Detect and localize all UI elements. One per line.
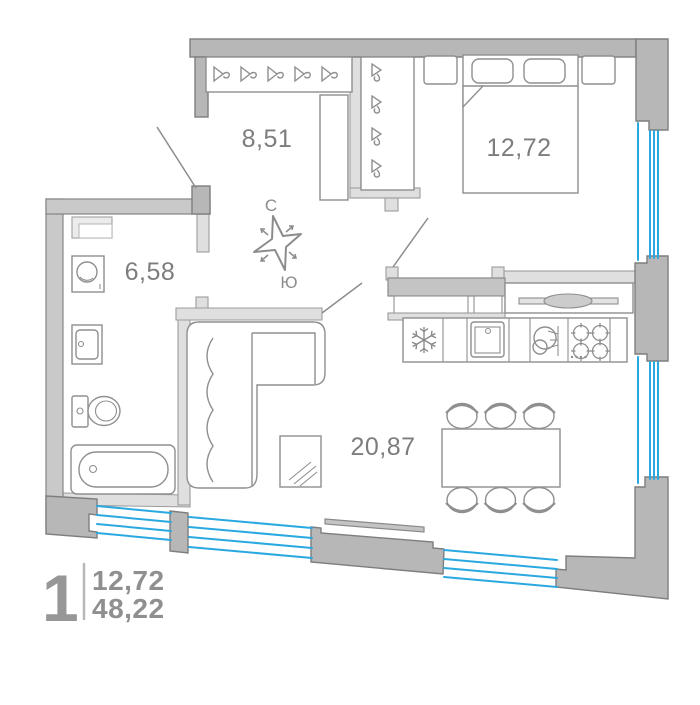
bar-cabinet-left — [394, 296, 468, 314]
compass-rose: С Ю — [254, 196, 301, 292]
bottom-pier-middle — [311, 527, 444, 574]
bottom-pier-left — [46, 496, 97, 538]
nightstand-left — [424, 56, 457, 84]
washing-machine-icon — [72, 256, 104, 292]
living-door-swing — [322, 283, 362, 313]
legend-living-area: 12,72 — [92, 565, 165, 596]
dining-set — [442, 404, 560, 513]
hallway — [206, 57, 414, 200]
pillow-right — [524, 59, 565, 83]
hall-cabinet — [320, 95, 348, 200]
living-partition-wall — [176, 308, 322, 320]
windowsill-bar — [325, 519, 424, 532]
bottom-pier-living-left — [170, 511, 188, 553]
chair-icon — [485, 404, 517, 429]
cooker-hood-icon — [544, 294, 592, 308]
kitchen-bar-wall — [388, 278, 505, 296]
window-bottom-bathroom — [97, 506, 171, 540]
kitchen — [388, 278, 633, 362]
bathroom-area-label: 6,58 — [125, 258, 176, 286]
bathroom-hall-wall — [197, 214, 209, 252]
chair-icon — [523, 488, 555, 513]
window-right-lower — [638, 357, 658, 483]
window-bottom-right — [444, 550, 557, 587]
chair-icon — [523, 404, 555, 429]
bedroom-kitchen-wall — [500, 271, 636, 283]
compass-south-label: Ю — [280, 273, 297, 292]
chair-icon — [485, 488, 517, 513]
bath-shelf — [72, 217, 112, 238]
window-right-upper — [638, 123, 658, 260]
entry-corner-block — [192, 186, 210, 214]
corner-wall-bottom-right — [556, 477, 668, 599]
bar-cabinet-right — [474, 296, 502, 314]
bathroom-top-wall — [46, 199, 210, 214]
toilet-icon — [72, 396, 120, 427]
bedroom-door-swing — [393, 218, 428, 267]
right-pier-middle — [635, 256, 668, 361]
chair-icon — [446, 404, 478, 429]
coffee-table — [280, 436, 321, 487]
kitchen-sink-icon — [471, 322, 504, 357]
nightstand-right — [582, 56, 615, 84]
right-pier-top — [636, 39, 668, 130]
wardrobe — [361, 57, 414, 190]
window-bottom-left — [189, 517, 312, 558]
dining-table — [442, 429, 560, 487]
compass-arrow-ne — [286, 226, 293, 232]
compass-arrow-sw — [261, 255, 268, 261]
legend: 1 12,72 48,22 — [42, 561, 165, 635]
compass-arrow-nw — [261, 229, 268, 235]
entry-door-swing — [157, 127, 196, 188]
bathroom-sink-icon — [72, 325, 102, 364]
hallway-area-label: 8,51 — [242, 125, 293, 153]
floor-plan-page: С Ю 8,51 12,72 6,58 20,87 1 12,72 48,22 — [0, 0, 700, 700]
compass-star-icon — [254, 216, 301, 270]
bathtub-icon — [71, 445, 175, 494]
wardrobe-wall-foot — [385, 198, 398, 211]
compass-arrow-se — [289, 252, 296, 258]
outer-wall-left — [46, 199, 63, 529]
floor-plan: С Ю 8,51 12,72 6,58 20,87 1 12,72 48,22 — [0, 0, 700, 700]
compass-north-label: С — [265, 196, 277, 215]
bedroom — [424, 55, 615, 193]
legend-total-area: 48,22 — [92, 593, 165, 624]
chair-icon — [446, 488, 478, 513]
legend-rooms-count: 1 — [42, 561, 79, 635]
pillow-left — [472, 59, 513, 83]
living-area-label: 20,87 — [350, 433, 415, 461]
bedroom-area-label: 12,72 — [486, 134, 551, 162]
